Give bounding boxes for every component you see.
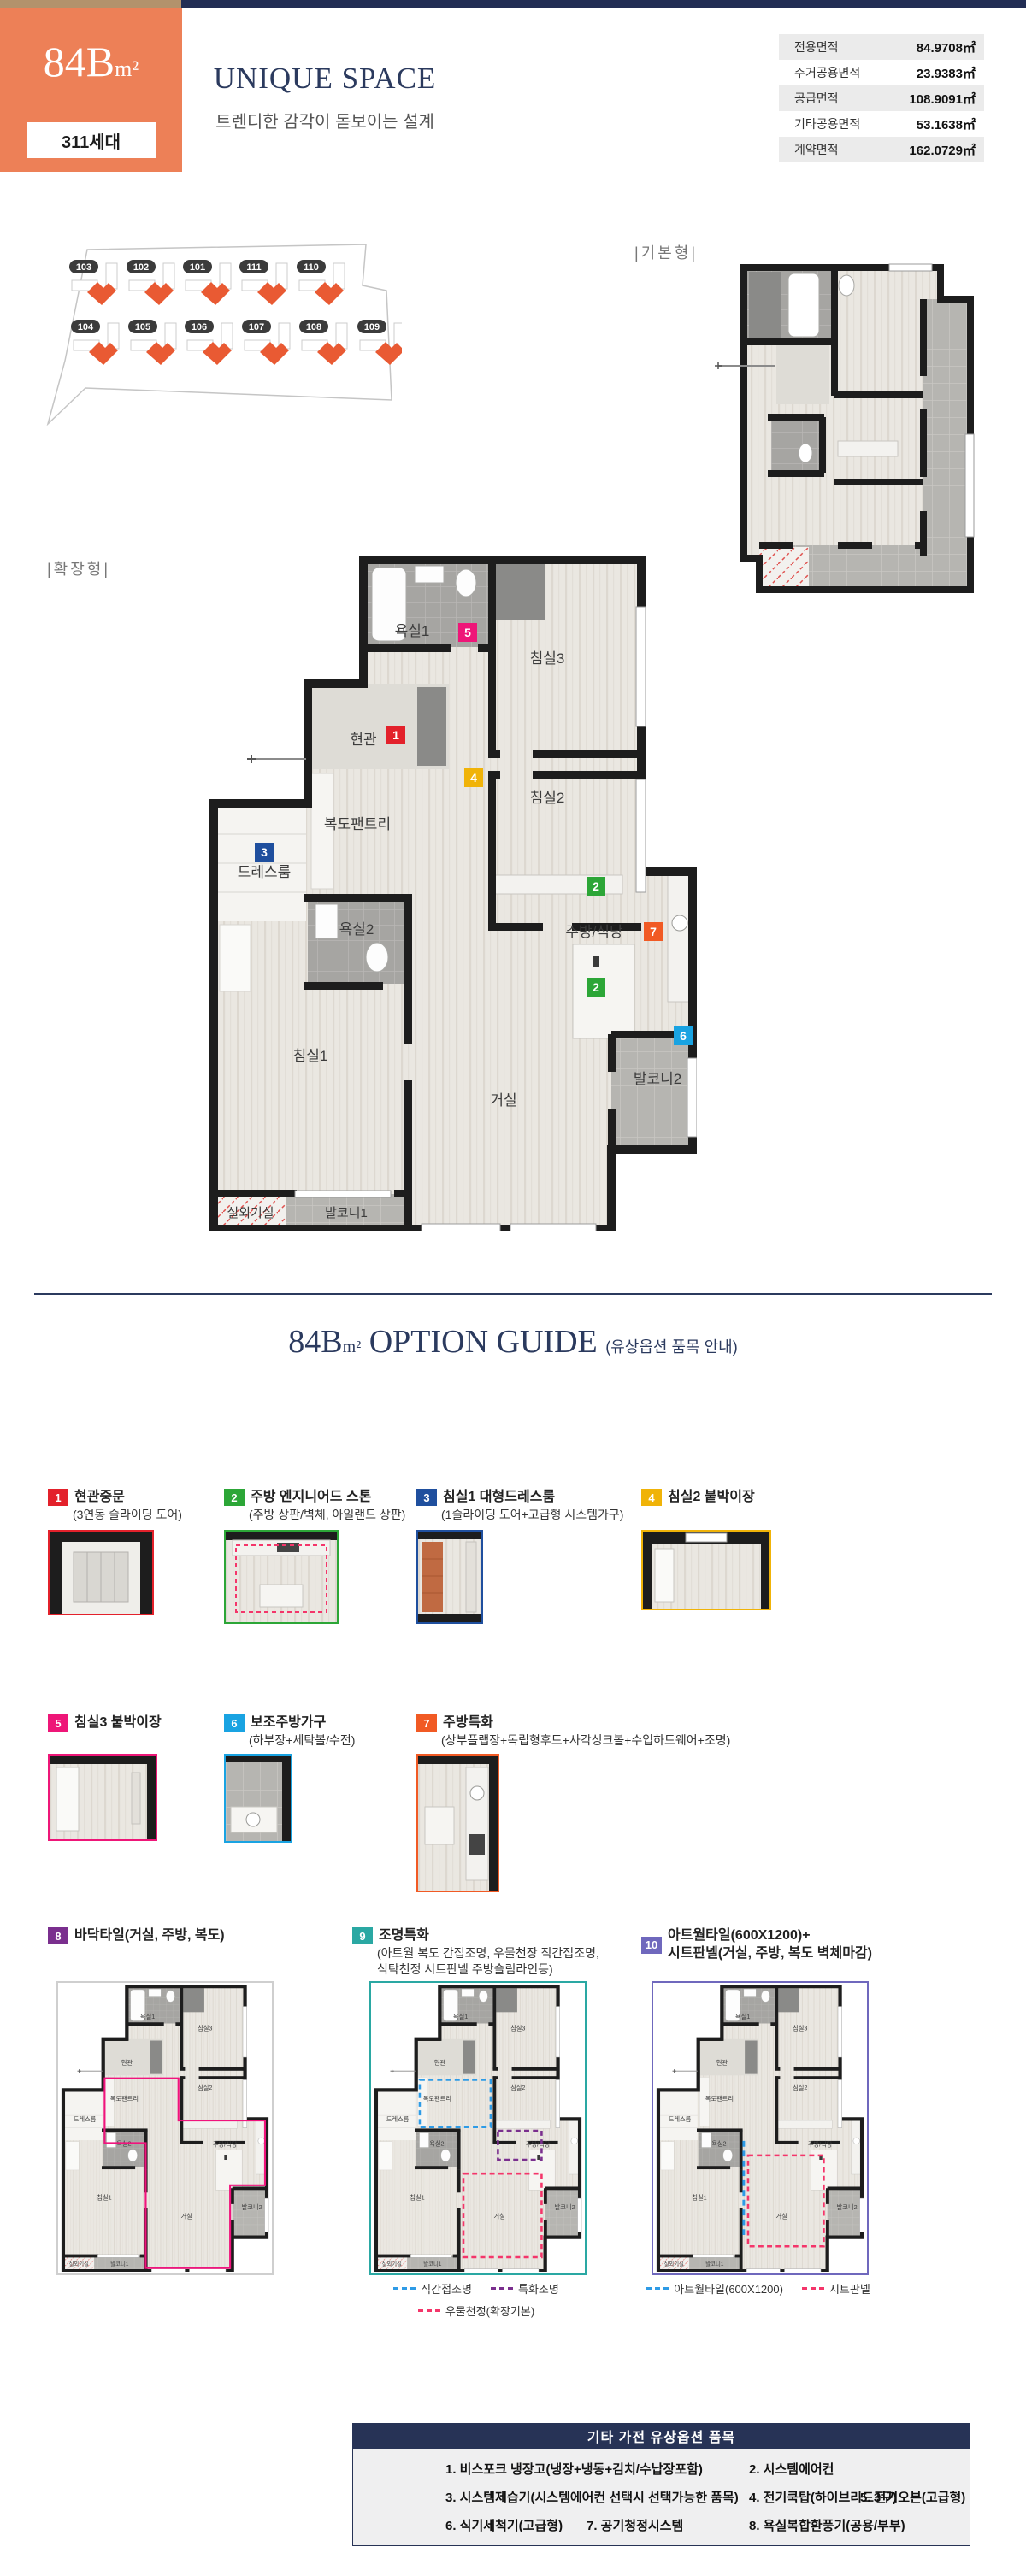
etc-table-title: 기타 가전 유상옵션 품목 bbox=[352, 2423, 970, 2449]
option-item-5: 5침실3 붙박이장 bbox=[48, 1714, 162, 1732]
option-title: 침실1 대형드레스룸 bbox=[443, 1489, 555, 1507]
option-title: 주방특화 bbox=[443, 1714, 493, 1732]
legend-lighting-row1: 직간접조명 특화조명 bbox=[348, 2280, 604, 2297]
building-number: 110 bbox=[304, 262, 319, 273]
plan-badge-5: 5 bbox=[458, 623, 477, 642]
etc-row-1: 1. 비스포크 냉장고(냉장+냉동+김치/수납장포함) 2. 시스템에어컨 bbox=[353, 2460, 970, 2488]
extended-plan-label: |확장형| bbox=[47, 557, 110, 579]
dash-swatch-blue bbox=[393, 2287, 416, 2290]
extended-floor-plan bbox=[209, 556, 697, 1231]
option-thumb-2 bbox=[224, 1530, 339, 1624]
option-plan-9 bbox=[369, 1981, 587, 2275]
area-row: 주거공용면적23.9383㎡ bbox=[779, 60, 984, 85]
option-item-10: 10아트월타일(600X1200)+ 시트판넬(거실, 주방, 복도 벽체마감) bbox=[641, 1927, 872, 1963]
building-number: 106 bbox=[192, 322, 207, 332]
basic-plan-label: |기본형| bbox=[634, 241, 698, 263]
option-thumb-4 bbox=[641, 1530, 771, 1610]
building-number: 102 bbox=[133, 262, 149, 273]
option-plan-10 bbox=[652, 1981, 869, 2275]
basic-floor-plan bbox=[710, 263, 979, 597]
option-badge-9: 9 bbox=[352, 1927, 373, 1944]
option-thumb-5 bbox=[48, 1754, 157, 1841]
option-desc: (3연동 슬라이딩 도어) bbox=[73, 1507, 182, 1523]
option-badge-1: 1 bbox=[48, 1489, 68, 1506]
option-thumb-7 bbox=[416, 1754, 499, 1892]
dash-swatch-blue bbox=[646, 2287, 669, 2290]
unit-type-label: 84Bm² bbox=[0, 40, 182, 83]
option-thumb-6 bbox=[224, 1754, 292, 1843]
option-title: 현관중문 bbox=[74, 1489, 125, 1507]
etc-row-2: 3. 시스템제습기(시스템에어컨 선택시 선택가능한 품목) 4. 전기쿡탑(하… bbox=[353, 2488, 970, 2516]
option-badge-4: 4 bbox=[641, 1489, 662, 1506]
brochure-page: 욕실1 현관 복도팬트리 드레스룸 욕실2 침실1 침실3 침실2 주방/식당 … bbox=[0, 0, 1026, 2576]
page-subtitle: 트렌디한 감각이 돋보이는 설계 bbox=[188, 108, 462, 132]
option-title: 아트월타일(600X1200)+ 시트판넬(거실, 주방, 복도 벽체마감) bbox=[668, 1927, 872, 1963]
option-item-8: 8바닥타일(거실, 주방, 복도) bbox=[48, 1927, 225, 1945]
option-badge-6: 6 bbox=[224, 1714, 245, 1732]
etc-table-body: 1. 비스포크 냉장고(냉장+냉동+김치/수납장포함) 2. 시스템에어컨 3.… bbox=[352, 2449, 970, 2546]
plan-badge-6: 6 bbox=[674, 1026, 693, 1045]
building-number: 111 bbox=[246, 262, 261, 273]
option-title: 주방 엔지니어드 스톤 bbox=[251, 1489, 371, 1507]
etc-option-table: 기타 가전 유상옵션 품목 1. 비스포크 냉장고(냉장+냉동+김치/수납장포함… bbox=[352, 2423, 970, 2546]
option-thumb-3 bbox=[416, 1530, 483, 1624]
option-item-7: 7주방특화 (상부플랩장+독립형후드+사각싱크볼+수입하드웨어+조명) bbox=[416, 1714, 730, 1749]
option-title: 침실2 붙박이장 bbox=[668, 1489, 755, 1507]
option-item-1: 1현관중문 (3연동 슬라이딩 도어) bbox=[48, 1489, 182, 1523]
option-desc: (1슬라이딩 도어+고급형 시스템가구) bbox=[441, 1507, 623, 1523]
option-badge-10: 10 bbox=[641, 1937, 662, 1954]
option-title: 조명특화 bbox=[379, 1927, 429, 1945]
option-item-4: 4침실2 붙박이장 bbox=[641, 1489, 755, 1507]
option-plan-8 bbox=[56, 1981, 274, 2275]
option-guide-title: 84Bm² OPTION GUIDE (유상옵션 품목 안내) bbox=[0, 1323, 1026, 1361]
option-title: 보조주방가구 bbox=[251, 1714, 326, 1732]
building-number: 108 bbox=[306, 322, 321, 332]
legend-artwall: 아트월타일(600X1200) 시트판넬 bbox=[622, 2280, 895, 2297]
option-desc: (하부장+세탁볼/수전) bbox=[249, 1732, 355, 1749]
building-number: 107 bbox=[249, 322, 264, 332]
site-plan: 103 102 101 111 110 104 105 106 107 108 … bbox=[34, 232, 402, 433]
plan-badge-2a: 2 bbox=[587, 877, 605, 896]
section-divider bbox=[34, 1293, 992, 1295]
mini-plan-9 bbox=[374, 1985, 582, 2272]
building-number: 103 bbox=[76, 262, 91, 273]
option-desc: (주방 상판/벽체, 아일랜드 상판) bbox=[249, 1507, 405, 1523]
building-number: 109 bbox=[364, 322, 380, 332]
option-badge-7: 7 bbox=[416, 1714, 437, 1732]
plan-badge-2b: 2 bbox=[587, 978, 605, 997]
plan-badge-1: 1 bbox=[386, 726, 405, 744]
page-title: UNIQUE SPACE bbox=[188, 62, 462, 96]
etc-row-3: 6. 식기세척기(고급형) 7. 공기청정시스템 8. 욕실복합환풍기(공용/부… bbox=[353, 2516, 970, 2544]
legend-lighting-row2: 우물천정(확장기본) bbox=[348, 2303, 604, 2319]
legend-item: 특화조명 bbox=[491, 2280, 559, 2297]
plan-badge-3: 3 bbox=[255, 843, 274, 862]
option-badge-2: 2 bbox=[224, 1489, 245, 1506]
building-number: 101 bbox=[190, 262, 205, 273]
dash-swatch-purple bbox=[491, 2287, 513, 2290]
building-number: 105 bbox=[135, 322, 150, 332]
area-row: 계약면적162.0729㎡ bbox=[779, 137, 984, 162]
option-item-9: 9조명특화 (아트월 복도 간접조명, 우물천장 직간접조명, 식탁천정 시트판… bbox=[352, 1927, 599, 1978]
area-row: 공급면적108.9091㎡ bbox=[779, 85, 984, 111]
dash-swatch-red bbox=[802, 2287, 824, 2290]
dash-swatch-red bbox=[418, 2309, 440, 2312]
option-item-3: 3침실1 대형드레스룸 (1슬라이딩 도어+고급형 시스템가구) bbox=[416, 1489, 623, 1523]
option-desc: (상부플랩장+독립형후드+사각싱크볼+수입하드웨어+조명) bbox=[441, 1732, 730, 1749]
option-title: 바닥타일(거실, 주방, 복도) bbox=[74, 1927, 225, 1945]
option-item-2: 2주방 엔지니어드 스톤 (주방 상판/벽체, 아일랜드 상판) bbox=[224, 1489, 405, 1523]
mini-plan-10 bbox=[656, 1985, 864, 2272]
legend-item: 시트판넬 bbox=[802, 2280, 870, 2297]
building-number: 104 bbox=[78, 322, 94, 332]
unit-type-box: 84Bm² 311세대 bbox=[0, 8, 182, 172]
legend-item: 아트월타일(600X1200) bbox=[646, 2280, 783, 2297]
area-row: 기타공용면적53.1638㎡ bbox=[779, 111, 984, 137]
households-badge: 311세대 bbox=[27, 122, 156, 158]
plan-badge-7: 7 bbox=[644, 922, 663, 941]
option-thumb-1 bbox=[48, 1530, 154, 1615]
legend-item: 직간접조명 bbox=[393, 2280, 472, 2297]
option-badge-8: 8 bbox=[48, 1927, 68, 1944]
mini-plan-8 bbox=[61, 1985, 269, 2272]
top-bar-tan bbox=[0, 0, 181, 8]
area-table: 전용면적84.9708㎡ 주거공용면적23.9383㎡ 공급면적108.9091… bbox=[779, 34, 984, 162]
option-badge-5: 5 bbox=[48, 1714, 68, 1732]
top-bar-navy bbox=[181, 0, 1026, 8]
option-desc: (아트월 복도 간접조명, 우물천장 직간접조명, 식탁천정 시트판넬 주방슬림… bbox=[377, 1945, 599, 1978]
option-badge-3: 3 bbox=[416, 1489, 437, 1506]
legend-item: 우물천정(확장기본) bbox=[418, 2303, 534, 2319]
option-item-6: 6보조주방가구 (하부장+세탁볼/수전) bbox=[224, 1714, 355, 1749]
option-title: 침실3 붙박이장 bbox=[74, 1714, 162, 1732]
plan-badge-4: 4 bbox=[464, 768, 483, 787]
area-row: 전용면적84.9708㎡ bbox=[779, 34, 984, 60]
